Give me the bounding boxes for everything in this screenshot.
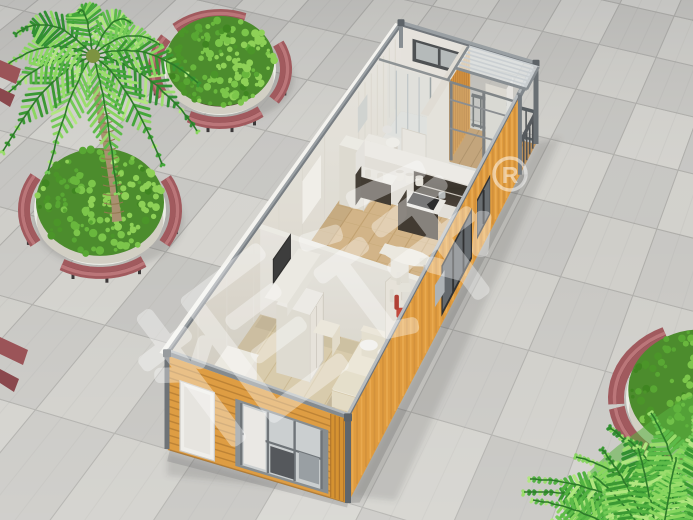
svg-text:R: R (502, 162, 519, 188)
